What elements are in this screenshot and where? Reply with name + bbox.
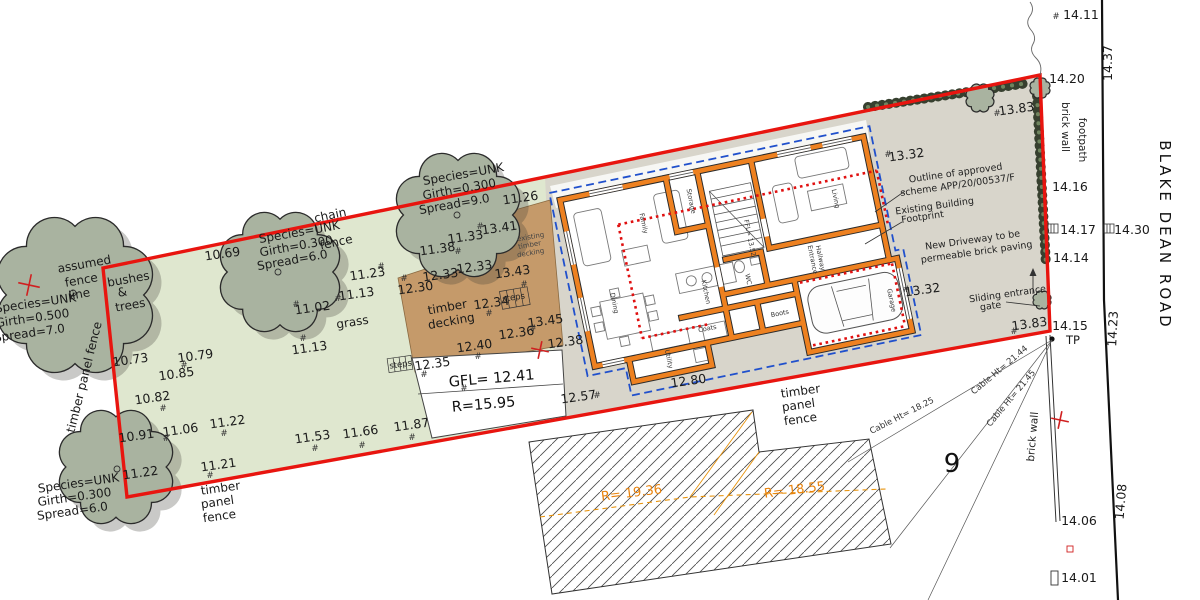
hash-mark: # xyxy=(1010,327,1017,337)
cable-height-label: Cable Ht= 18.25 xyxy=(868,396,936,437)
chair xyxy=(591,306,602,317)
spot-level: 14.08 xyxy=(1111,483,1129,520)
site-plan-canvas: Family Dining Kitchen Storage Living Ent… xyxy=(0,0,1200,600)
spot-level: 14.20 xyxy=(1049,71,1085,86)
spot-level: 14.16 xyxy=(1052,179,1088,194)
hash-mark: # xyxy=(902,285,909,295)
hash-mark: # xyxy=(377,262,384,272)
spot-level: 14.01 xyxy=(1061,570,1097,585)
hash-mark: # xyxy=(299,334,306,344)
post-symbol xyxy=(1051,571,1058,585)
spot-level: 14.06 xyxy=(1061,513,1097,528)
hash-mark: # xyxy=(220,429,227,439)
plot-number: 9 xyxy=(944,449,961,479)
hash-mark: # xyxy=(206,471,213,481)
hash-mark: # xyxy=(358,441,365,451)
spot-level: 14.17 xyxy=(1060,222,1096,237)
hash-mark: # xyxy=(529,324,536,334)
hash-mark: # xyxy=(474,352,481,362)
telegraph-pole-label: TP xyxy=(1065,333,1080,347)
hash-mark: # xyxy=(993,109,1000,119)
hash-mark: # xyxy=(334,294,341,304)
hash-mark: # xyxy=(454,247,461,257)
footpath-label: footpath xyxy=(1076,118,1088,163)
hash-mark: # xyxy=(1052,12,1059,22)
spot-level: 14.37 xyxy=(1100,45,1115,81)
hash-mark: # xyxy=(162,434,169,444)
spot-level: 14.14 xyxy=(1053,250,1089,265)
chair xyxy=(648,311,659,322)
chair xyxy=(594,322,605,333)
neighbour-building-hatched xyxy=(529,410,891,594)
chair xyxy=(645,295,656,306)
hash-mark: # xyxy=(292,300,299,310)
hash-mark: # xyxy=(420,370,427,380)
brick-wall-label: brick wall xyxy=(1059,102,1071,152)
basin xyxy=(750,257,760,266)
hash-mark: # xyxy=(593,391,600,401)
spot-level: 14.15 xyxy=(1052,318,1088,333)
hash-mark: # xyxy=(311,444,318,454)
site-plan-drawing: Family Dining Kitchen Storage Living Ent… xyxy=(0,0,1200,600)
chair xyxy=(619,336,630,347)
hash-mark: # xyxy=(159,404,166,414)
hash-mark: # xyxy=(408,433,415,443)
hash-mark: # xyxy=(476,222,483,232)
spot-level: 14.11 xyxy=(1063,7,1099,22)
red-marker-square xyxy=(1067,546,1073,552)
hash-mark: # xyxy=(520,280,527,290)
brick-wall-label: brick wall xyxy=(1025,411,1041,462)
spot-level: 14.23 xyxy=(1104,310,1121,347)
boundary-squiggle-line xyxy=(1028,2,1041,75)
hash-mark: # xyxy=(180,361,187,371)
hash-mark: # xyxy=(884,150,891,160)
hash-mark: # xyxy=(400,274,407,284)
spot-level: 14.30 xyxy=(1114,222,1150,237)
hash-mark: # xyxy=(485,309,492,319)
road-name: BLAKE DEAN ROAD xyxy=(1156,140,1174,329)
